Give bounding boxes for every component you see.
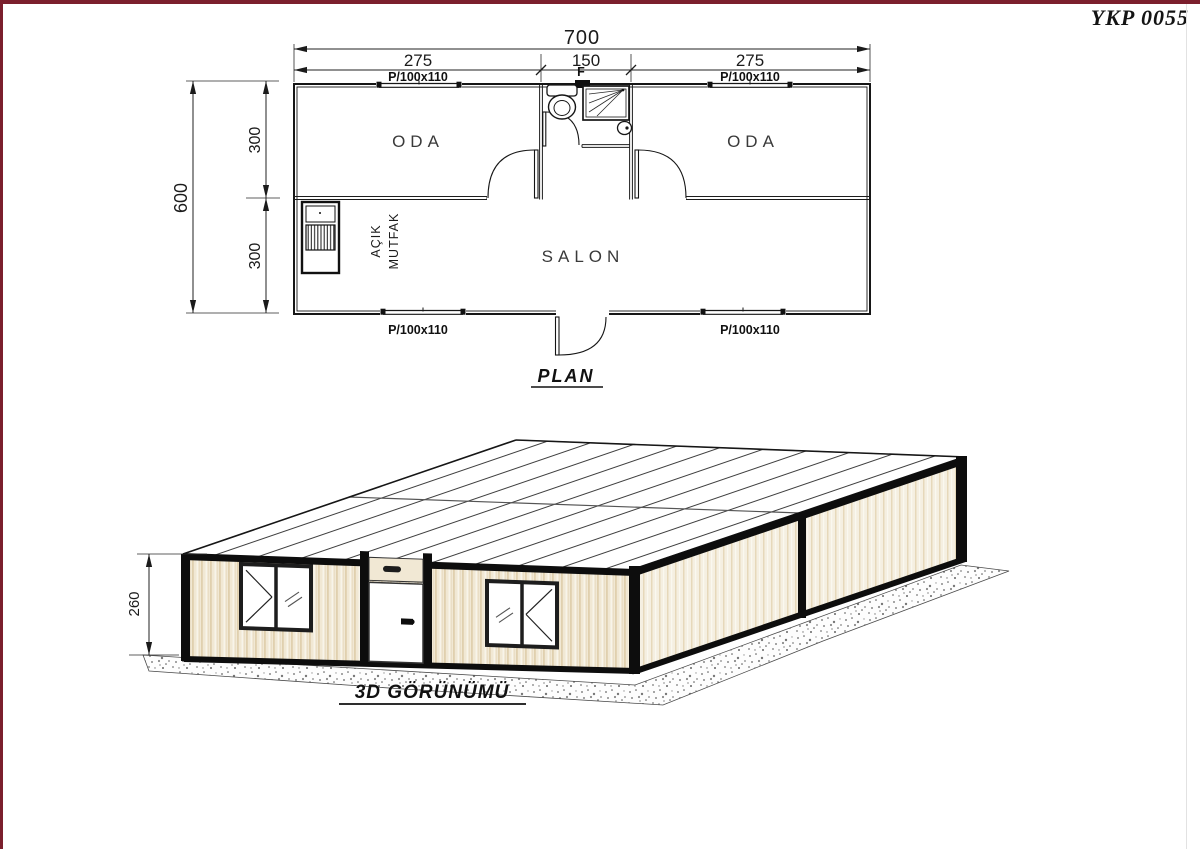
window-label-bottom-right: P/100x110 (720, 323, 780, 337)
kitchen-label-word2: MUTFAK (387, 213, 401, 270)
window-3d-left (241, 564, 311, 630)
dim-150: 150 (572, 51, 600, 70)
plan-labels-bottom: P/100x110 P/100x110 (388, 323, 780, 337)
corner-post-left (181, 554, 190, 661)
dim-275-left: 275 (404, 51, 432, 70)
corner-post-far-right (956, 456, 967, 562)
room-label-oda-right: ODA (727, 132, 779, 151)
corner-post-front-right (629, 566, 640, 674)
plan-section-label: PLAN (538, 366, 595, 386)
plan-caption: PLAN (531, 366, 603, 387)
view3d-section-label: 3D GÖRÜNÜMÜ (355, 682, 510, 703)
plan-dimensions-left: 600 300 300 (171, 81, 280, 313)
floor-plan: 700 275 150 275 P/100x110 P/100x110 F 60… (171, 27, 870, 387)
window-3d-right (487, 581, 557, 647)
door-vent (383, 566, 401, 573)
view-3d: 260 3D GÖRÜNÜMÜ (126, 440, 1009, 705)
view3d-caption: 3D GÖRÜNÜMÜ (339, 682, 526, 704)
dim-600: 600 (171, 183, 191, 213)
bath-window-label: F (577, 65, 585, 79)
door-entrance (556, 309, 610, 356)
entry-door-3d (360, 551, 432, 666)
plan-dimensions-top: 700 275 150 275 P/100x110 P/100x110 F (294, 27, 870, 84)
window-symbol-bottom-right (700, 308, 786, 318)
side-mid-post (798, 514, 806, 618)
shower-icon (583, 86, 629, 120)
window-label-bottom-left: P/100x110 (388, 323, 448, 337)
door-leaf (369, 582, 423, 663)
window-label-top-right: P/100x110 (720, 70, 780, 84)
window-label-top-left: P/100x110 (388, 70, 448, 84)
kitchen-label-word1: AÇIK (369, 224, 383, 257)
toilet-icon (547, 85, 577, 119)
dim-300-bottom: 300 (247, 243, 264, 270)
technical-drawing: 700 275 150 275 P/100x110 P/100x110 F 60… (3, 4, 1200, 849)
catalog-page: YKP 0055 (0, 0, 1200, 849)
room-label-oda-left: ODA (392, 132, 444, 151)
dim-300-top: 300 (247, 127, 264, 154)
dim-700: 700 (564, 27, 600, 49)
window-symbol-bottom-left (380, 308, 466, 318)
dim-260: 260 (126, 591, 143, 616)
kitchen-unit-icon (302, 202, 339, 273)
sink-icon (618, 122, 632, 135)
room-label-salon: SALON (542, 247, 625, 266)
dim-275-right: 275 (736, 51, 764, 70)
